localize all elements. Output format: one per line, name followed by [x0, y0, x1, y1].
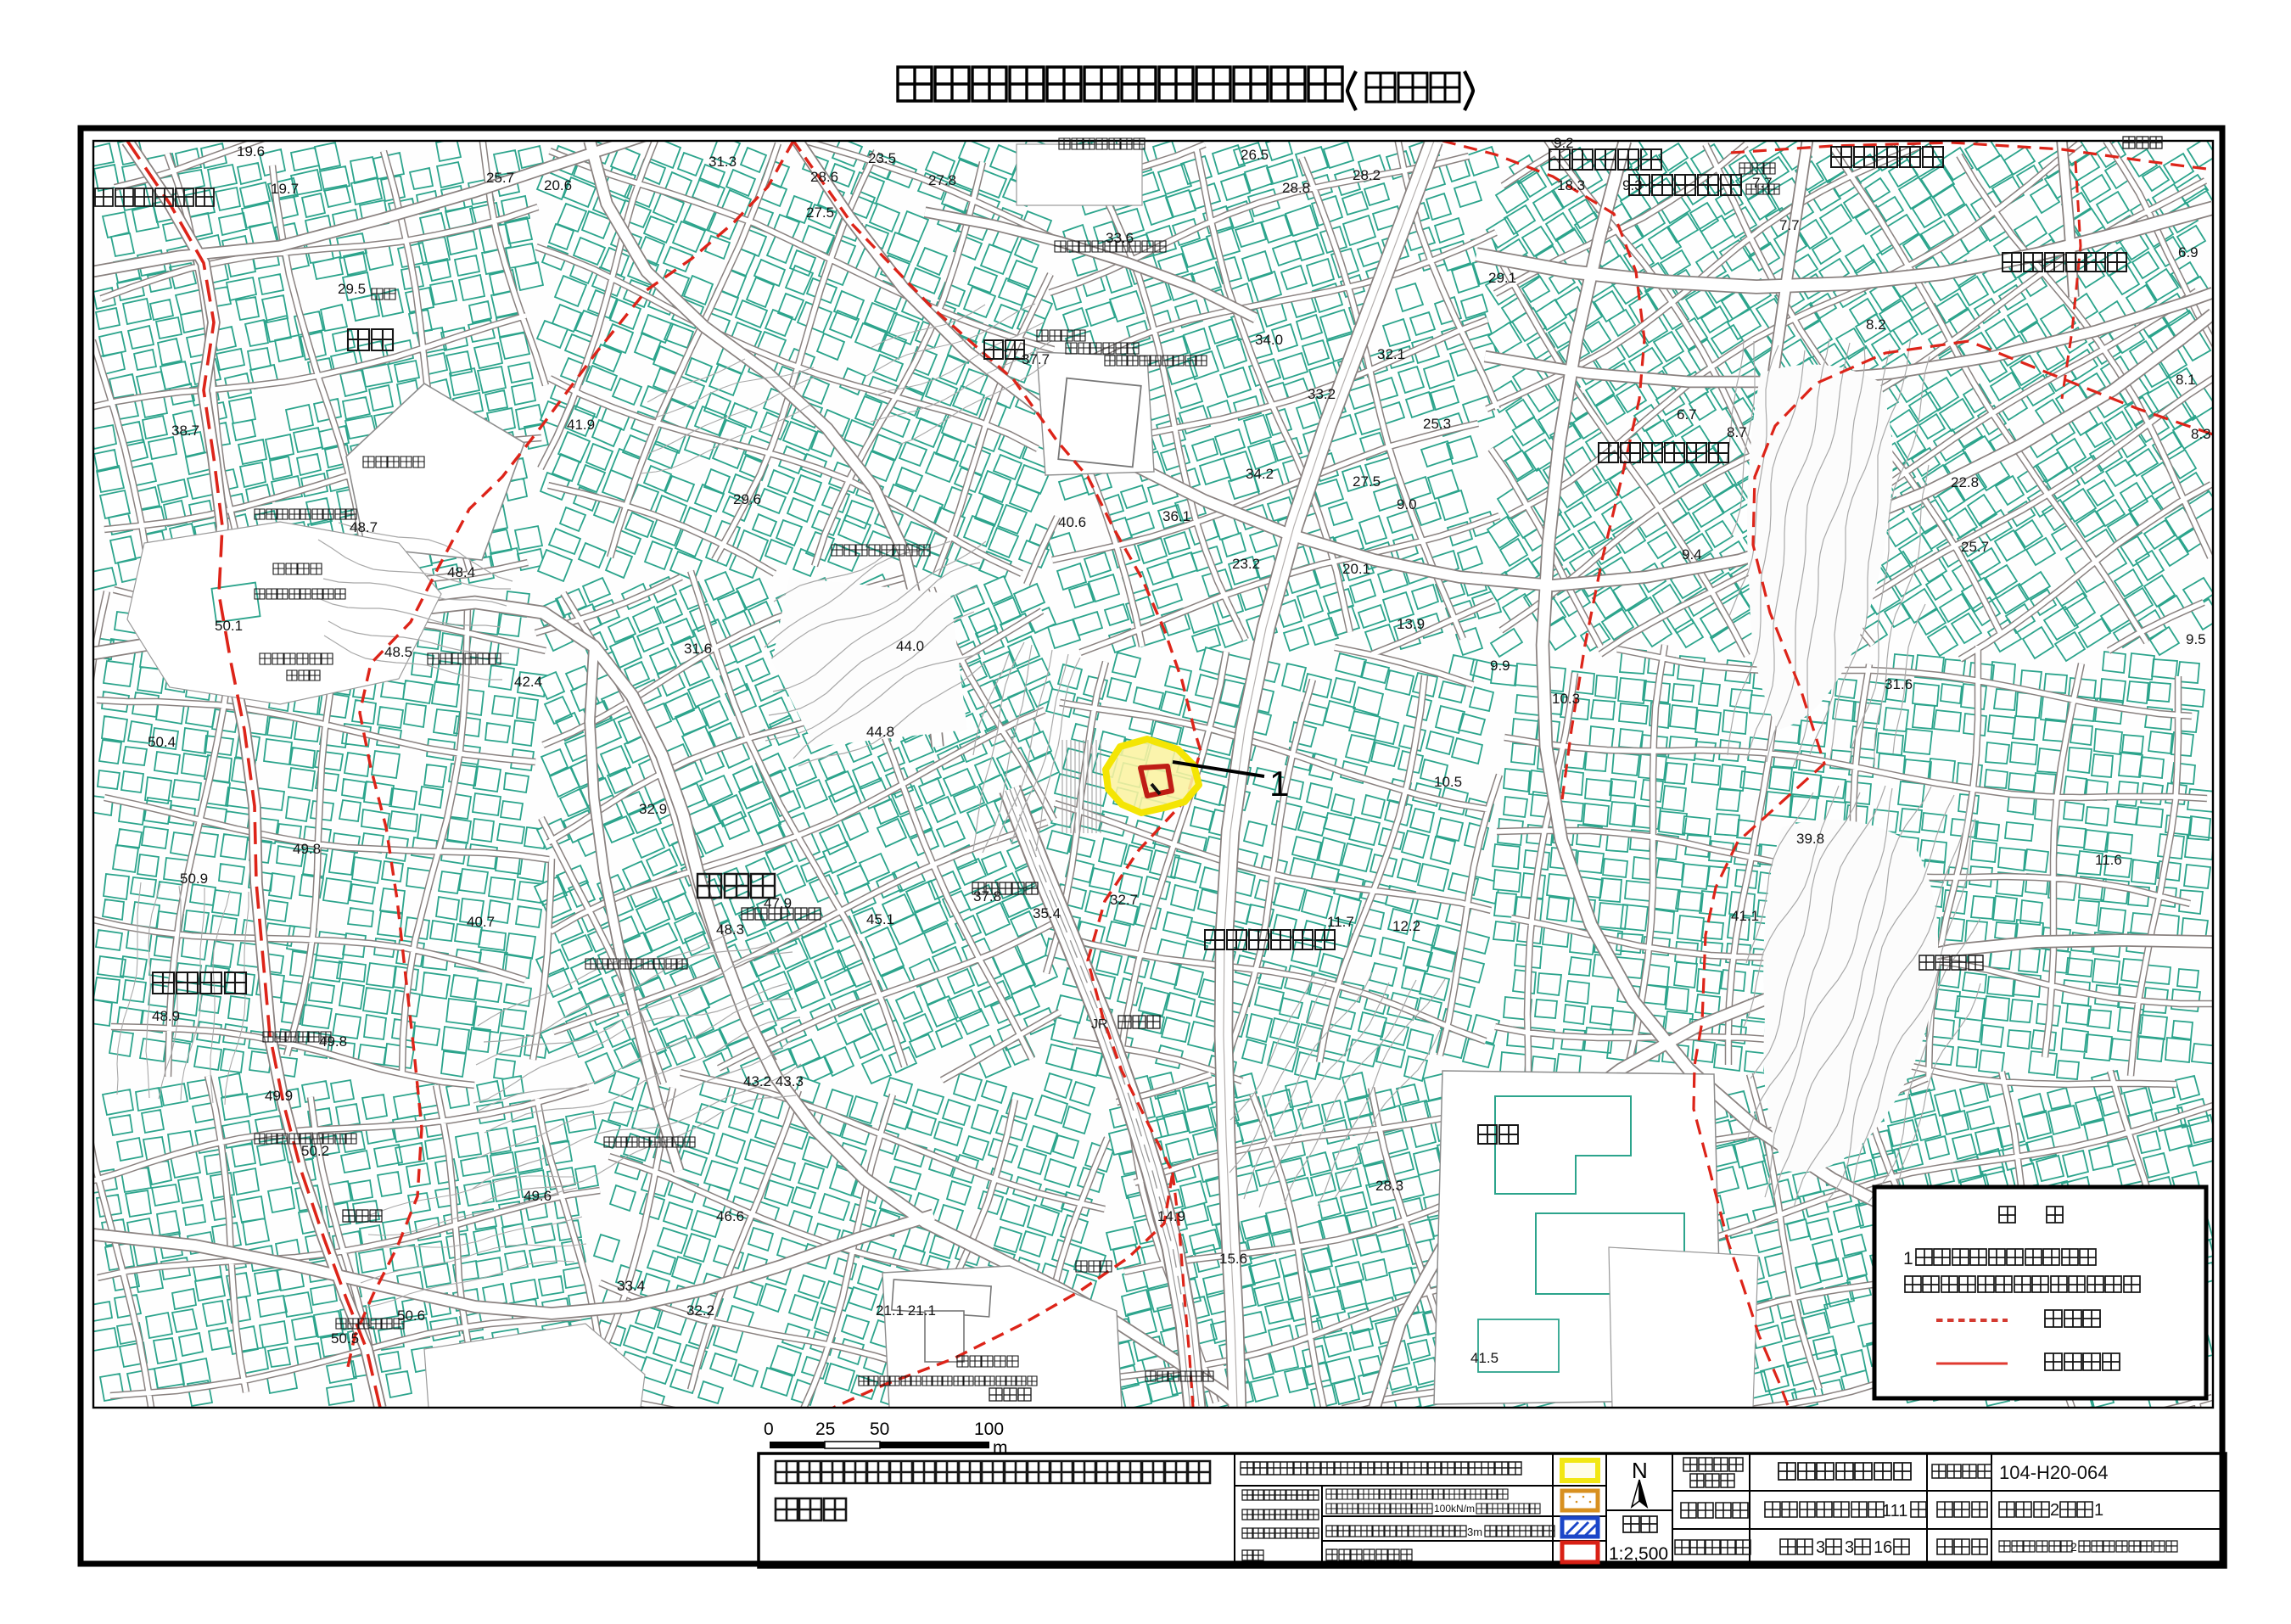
svg-text:6.7: 6.7: [1677, 406, 1697, 423]
svg-text:N: N: [1632, 1458, 1648, 1483]
svg-text:10.5: 10.5: [1434, 774, 1462, 790]
svg-text:48.9: 48.9: [152, 1008, 180, 1024]
svg-text:50.4: 50.4: [148, 734, 176, 750]
svg-text:48.5: 48.5: [384, 644, 412, 660]
svg-text:31.6: 31.6: [1885, 676, 1913, 692]
svg-text:8.3: 8.3: [2191, 426, 2211, 442]
svg-text:9.2: 9.2: [1554, 135, 1574, 151]
svg-text:20.6: 20.6: [544, 177, 572, 193]
svg-text:16: 16: [1874, 1538, 1892, 1557]
svg-text:1: 1: [2094, 1501, 2103, 1520]
svg-text:9.4: 9.4: [1682, 546, 1702, 563]
svg-text:33.4: 33.4: [617, 1278, 645, 1294]
svg-text:28.8: 28.8: [1282, 180, 1310, 196]
svg-text:9.3: 9.3: [1622, 177, 1643, 193]
svg-text:32.1: 32.1: [1377, 346, 1405, 362]
svg-text:44.0: 44.0: [896, 638, 924, 654]
svg-text:47.9: 47.9: [764, 895, 792, 911]
svg-text:8.7: 8.7: [1727, 424, 1747, 440]
svg-text:50.1: 50.1: [215, 618, 243, 634]
svg-text:29.6: 29.6: [733, 491, 761, 507]
svg-text:11.7: 11.7: [1327, 914, 1354, 930]
svg-text:15.6: 15.6: [1219, 1251, 1247, 1267]
svg-text:40.7: 40.7: [467, 914, 495, 930]
svg-text:35.4: 35.4: [1033, 905, 1061, 921]
svg-text:31.3: 31.3: [709, 154, 737, 170]
svg-text:32.9: 32.9: [639, 801, 667, 817]
svg-text:100kN/m: 100kN/m: [1434, 1503, 1475, 1515]
svg-text:27.8: 27.8: [928, 172, 956, 188]
svg-text:23.2: 23.2: [1232, 556, 1260, 572]
svg-text:2: 2: [2050, 1501, 2059, 1520]
svg-text:32.2: 32.2: [686, 1302, 714, 1319]
svg-text:50: 50: [870, 1420, 889, 1439]
svg-text:21.1 21.1: 21.1 21.1: [876, 1302, 936, 1319]
svg-text:3m: 3m: [1467, 1526, 1482, 1538]
svg-text:3: 3: [1845, 1538, 1854, 1557]
svg-text:9.0: 9.0: [1397, 496, 1417, 512]
svg-text:20.1: 20.1: [1342, 561, 1370, 577]
svg-text:50.6: 50.6: [397, 1308, 425, 1324]
svg-text:32.7: 32.7: [1110, 892, 1138, 908]
svg-text:49.8: 49.8: [319, 1033, 347, 1050]
svg-text:33.2: 33.2: [1308, 386, 1336, 402]
svg-text:27.5: 27.5: [806, 204, 834, 221]
svg-text:31.6: 31.6: [684, 641, 712, 657]
svg-text:37.7: 37.7: [1022, 351, 1050, 367]
svg-text:1: 1: [1269, 764, 1289, 804]
svg-text:0: 0: [764, 1420, 774, 1439]
svg-text:9.9: 9.9: [1490, 658, 1510, 674]
svg-text:50.9: 50.9: [180, 871, 208, 887]
svg-text:48.3: 48.3: [716, 921, 744, 938]
svg-text:27.5: 27.5: [1353, 473, 1381, 490]
svg-text:1:2,500: 1:2,500: [1609, 1544, 1668, 1564]
svg-text:44.8: 44.8: [866, 724, 894, 740]
svg-text:46.6: 46.6: [716, 1208, 744, 1224]
svg-text:18.3: 18.3: [1557, 177, 1585, 193]
svg-text:12.2: 12.2: [1392, 918, 1420, 934]
svg-text:19.6: 19.6: [237, 143, 265, 160]
svg-text:6.9: 6.9: [2178, 244, 2199, 260]
svg-text:111: 111: [1882, 1502, 1907, 1520]
svg-text:39.8: 39.8: [1796, 831, 1824, 847]
svg-text:48.4: 48.4: [447, 564, 475, 580]
svg-text:26.5: 26.5: [1241, 147, 1269, 163]
svg-text:29.5: 29.5: [338, 281, 366, 297]
svg-text:28.3: 28.3: [1375, 1178, 1403, 1194]
svg-text:48.7: 48.7: [350, 519, 378, 535]
svg-text:50.2: 50.2: [301, 1143, 329, 1159]
svg-text:2: 2: [2070, 1540, 2077, 1554]
svg-text:49.6: 49.6: [524, 1188, 552, 1204]
svg-text:13.9: 13.9: [1397, 616, 1425, 632]
svg-text:23.5: 23.5: [868, 150, 896, 166]
svg-text:42.4: 42.4: [514, 674, 542, 690]
svg-text:41.5: 41.5: [1470, 1350, 1498, 1366]
svg-text:22.8: 22.8: [1951, 474, 1979, 490]
svg-text:25.3: 25.3: [1423, 416, 1451, 432]
svg-text:45.1: 45.1: [866, 911, 894, 927]
svg-text:11.6: 11.6: [2095, 852, 2122, 868]
svg-text:7.7: 7.7: [1779, 217, 1800, 233]
svg-text:29.1: 29.1: [1488, 270, 1516, 286]
svg-text:JR: JR: [1091, 1017, 1108, 1032]
svg-text:25: 25: [815, 1420, 835, 1439]
svg-text:33.6: 33.6: [1106, 230, 1134, 246]
svg-text:49.9: 49.9: [265, 1088, 293, 1104]
svg-text:37.8: 37.8: [973, 888, 1001, 904]
svg-text:8.1: 8.1: [2176, 372, 2196, 388]
svg-text:104-H20-064: 104-H20-064: [1999, 1462, 2108, 1483]
svg-text:34.2: 34.2: [1246, 466, 1274, 482]
svg-text:9.5: 9.5: [2186, 631, 2206, 647]
svg-text:36.1: 36.1: [1162, 508, 1190, 524]
svg-text:41.9: 41.9: [567, 417, 595, 433]
svg-text:8.2: 8.2: [1866, 316, 1886, 333]
svg-text:38.7: 38.7: [171, 423, 199, 439]
svg-text:10.3: 10.3: [1552, 691, 1580, 707]
svg-text:1: 1: [1903, 1249, 1913, 1268]
svg-text:43.2 43.3: 43.2 43.3: [743, 1073, 804, 1089]
svg-text:40.6: 40.6: [1058, 514, 1086, 530]
svg-text:100: 100: [974, 1420, 1004, 1439]
svg-text:3: 3: [1816, 1538, 1825, 1557]
svg-text:41.1: 41.1: [1731, 908, 1759, 924]
svg-text:28.2: 28.2: [1353, 167, 1381, 183]
svg-text:25.7: 25.7: [486, 170, 514, 186]
svg-text:50.5: 50.5: [331, 1330, 359, 1347]
svg-text:7.7: 7.7: [1752, 175, 1773, 191]
svg-text:14.9: 14.9: [1157, 1208, 1185, 1224]
svg-text:25.7: 25.7: [1961, 539, 1989, 555]
svg-text:49.8: 49.8: [293, 841, 321, 857]
svg-text:19.7: 19.7: [271, 181, 299, 197]
svg-text:28.6: 28.6: [810, 169, 838, 185]
svg-text:34.0: 34.0: [1255, 332, 1283, 348]
